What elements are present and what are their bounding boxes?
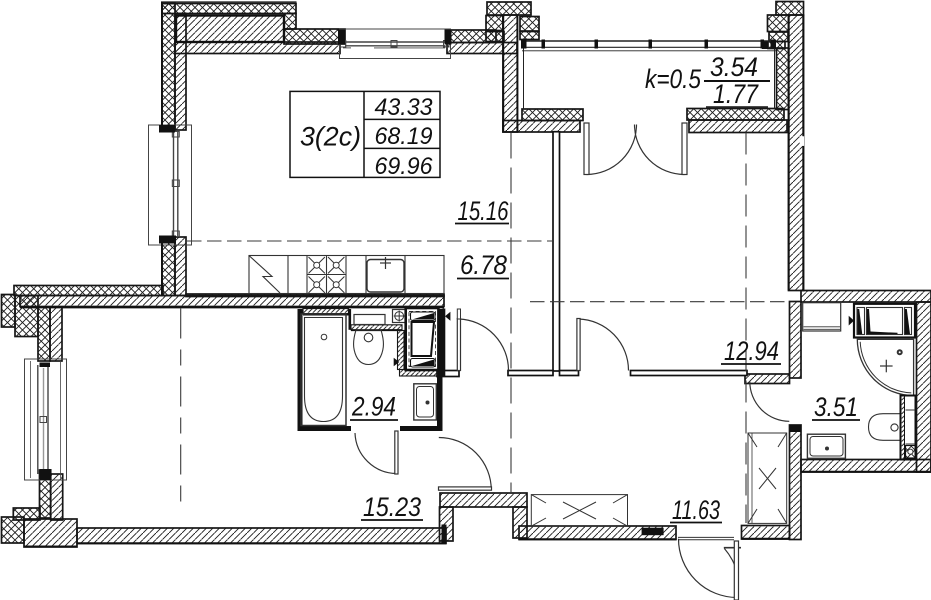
svg-text:3(2с): 3(2с): [300, 122, 361, 152]
svg-text:3.51: 3.51: [814, 392, 858, 422]
svg-text:2.94: 2.94: [351, 392, 396, 422]
svg-text:68.19: 68.19: [375, 123, 433, 150]
svg-text:12.94: 12.94: [724, 336, 779, 366]
svg-text:11.63: 11.63: [672, 495, 720, 525]
svg-text:15.23: 15.23: [363, 492, 421, 522]
svg-text:43.33: 43.33: [375, 94, 434, 121]
svg-text:15.16: 15.16: [458, 196, 510, 226]
svg-text:69.96: 69.96: [375, 153, 434, 180]
svg-text:6.78: 6.78: [460, 250, 507, 280]
svg-text:3.54: 3.54: [710, 52, 758, 82]
svg-text:k=0.5: k=0.5: [645, 64, 702, 94]
svg-text:1.77: 1.77: [713, 79, 759, 109]
